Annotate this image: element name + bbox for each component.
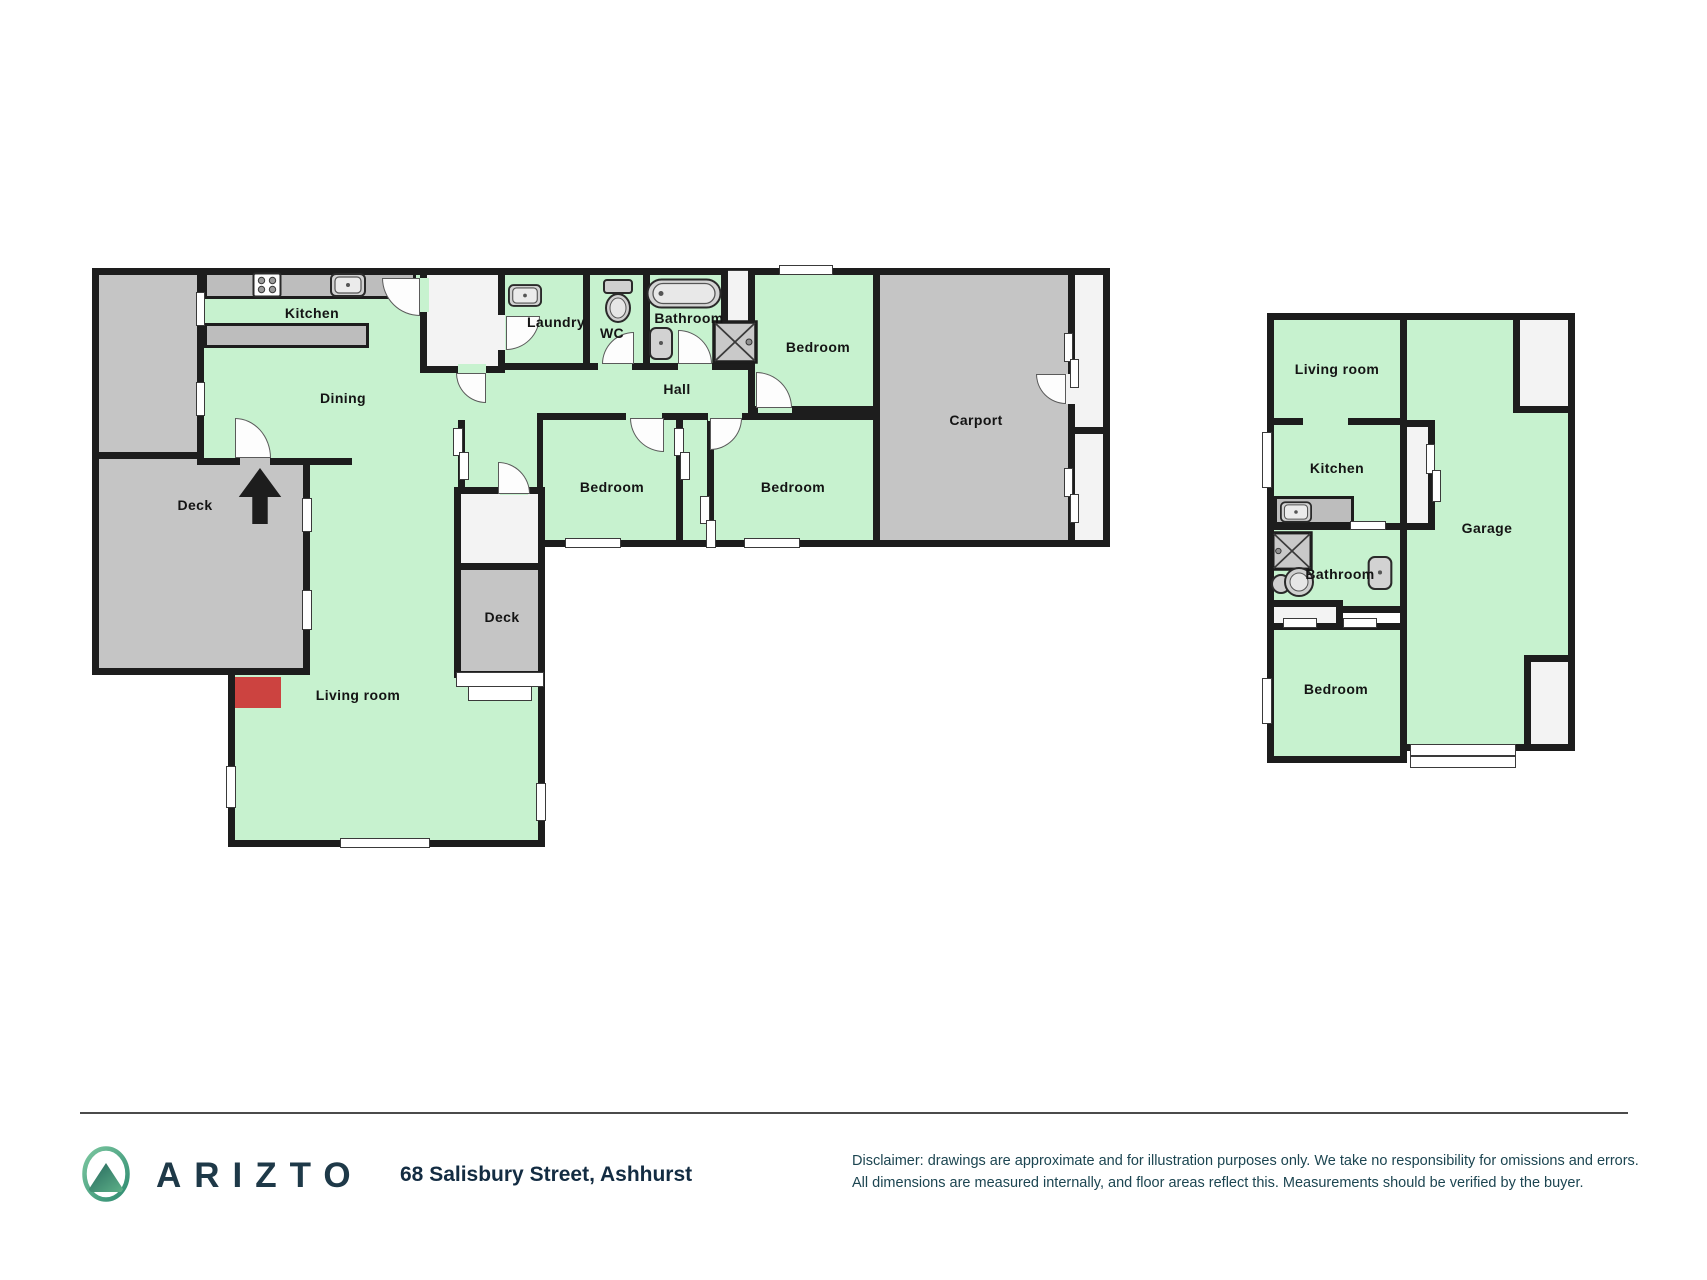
window-marker bbox=[1262, 678, 1272, 724]
wall-segment bbox=[632, 363, 678, 370]
shower-icon bbox=[712, 320, 758, 364]
footer-divider bbox=[80, 1112, 1628, 1114]
toilet-icon bbox=[600, 278, 636, 326]
garage-door-marker bbox=[1410, 756, 1516, 768]
window-marker bbox=[196, 382, 205, 416]
disclaimer-text: Disclaimer: drawings are approximate and… bbox=[852, 1150, 1662, 1195]
window-marker bbox=[1343, 618, 1377, 628]
sink-icon bbox=[330, 273, 366, 297]
sliding-door-marker bbox=[1432, 470, 1441, 502]
window-marker bbox=[456, 672, 544, 687]
garage-store-bottom bbox=[1524, 655, 1575, 751]
wall-segment bbox=[503, 363, 598, 370]
room-label-living2: Living room bbox=[1295, 361, 1380, 377]
sliding-door-marker bbox=[680, 452, 690, 480]
room-label-dining: Dining bbox=[320, 390, 366, 406]
wide-opening bbox=[352, 458, 420, 465]
disclaimer-line-1: Disclaimer: drawings are approximate and… bbox=[852, 1150, 1662, 1172]
room-label-bedroom-top: Bedroom bbox=[786, 339, 850, 355]
room-carport bbox=[873, 268, 1075, 547]
room-label-bedroom2: Bedroom bbox=[1304, 681, 1368, 697]
window-marker bbox=[1262, 432, 1272, 488]
floorplan-page: Kitchen Dining Deck Laundry WC Bathroom … bbox=[0, 0, 1707, 1280]
entry-lobby bbox=[454, 487, 545, 570]
room-label-bedroom-right: Bedroom bbox=[761, 479, 825, 495]
window-marker bbox=[744, 538, 800, 548]
wall-segment bbox=[792, 406, 880, 413]
wall-segment bbox=[712, 363, 748, 370]
sliding-door-marker bbox=[1070, 359, 1079, 388]
window-marker bbox=[196, 292, 205, 326]
disclaimer-line-2: All dimensions are measured internally, … bbox=[852, 1172, 1662, 1194]
kitchen-island-counter bbox=[204, 323, 369, 348]
sink-icon bbox=[1280, 501, 1312, 523]
window-marker bbox=[1283, 618, 1317, 628]
carport-side-store-lower bbox=[1068, 427, 1110, 547]
north-arrow-icon bbox=[238, 468, 282, 524]
room-label-bathroom: Bathroom bbox=[654, 310, 723, 326]
room-label-bathroom2: Bathroom bbox=[1305, 566, 1374, 582]
carport-side-store-upper bbox=[1068, 268, 1110, 434]
brand-wordmark: ARIZTO bbox=[156, 1156, 364, 1196]
room-label-deck-right: Deck bbox=[484, 609, 519, 625]
room-label-bedroom-center: Bedroom bbox=[580, 479, 644, 495]
sliding-door-marker bbox=[1070, 494, 1079, 523]
fireplace-marker bbox=[235, 677, 281, 708]
room-label-carport: Carport bbox=[949, 412, 1002, 428]
garage-door-marker bbox=[1410, 744, 1516, 756]
window-marker bbox=[468, 686, 532, 701]
deck-left-upper bbox=[92, 268, 204, 464]
room-label-garage: Garage bbox=[1462, 520, 1513, 536]
room-label-laundry: Laundry bbox=[527, 314, 585, 330]
living-room-open-area bbox=[310, 595, 454, 755]
window-marker bbox=[226, 766, 236, 808]
door-opening bbox=[498, 315, 505, 350]
room-label-wc: WC bbox=[600, 325, 624, 341]
sliding-door-marker bbox=[459, 452, 469, 480]
window-marker bbox=[1350, 521, 1386, 530]
property-address: 68 Salisbury Street, Ashhurst bbox=[400, 1163, 692, 1187]
stove-icon bbox=[252, 272, 282, 298]
window-marker bbox=[302, 590, 312, 630]
room-label-hall: Hall bbox=[663, 381, 690, 397]
sliding-door-marker bbox=[706, 520, 716, 548]
room-label-kitchen: Kitchen bbox=[285, 305, 339, 321]
window-marker bbox=[340, 838, 430, 848]
entry-porch bbox=[420, 268, 505, 373]
garage-entry-strip bbox=[1400, 420, 1435, 530]
garage-store-top bbox=[1513, 313, 1575, 413]
sliding-door-marker bbox=[1064, 333, 1073, 362]
sink-icon bbox=[508, 283, 542, 308]
bathtub-icon bbox=[646, 278, 722, 309]
window-marker bbox=[302, 498, 312, 532]
window-marker bbox=[536, 783, 546, 821]
room-label-living-room: Living room bbox=[316, 687, 401, 703]
room-label-deck-left: Deck bbox=[177, 497, 212, 513]
wide-opening bbox=[1303, 416, 1348, 427]
arizto-logo-icon bbox=[82, 1146, 130, 1202]
window-marker bbox=[565, 538, 621, 548]
sink-icon bbox=[648, 327, 674, 360]
sliding-door-marker bbox=[1064, 468, 1073, 497]
window-marker bbox=[779, 265, 833, 275]
room-label-kitchen2: Kitchen bbox=[1310, 460, 1364, 476]
